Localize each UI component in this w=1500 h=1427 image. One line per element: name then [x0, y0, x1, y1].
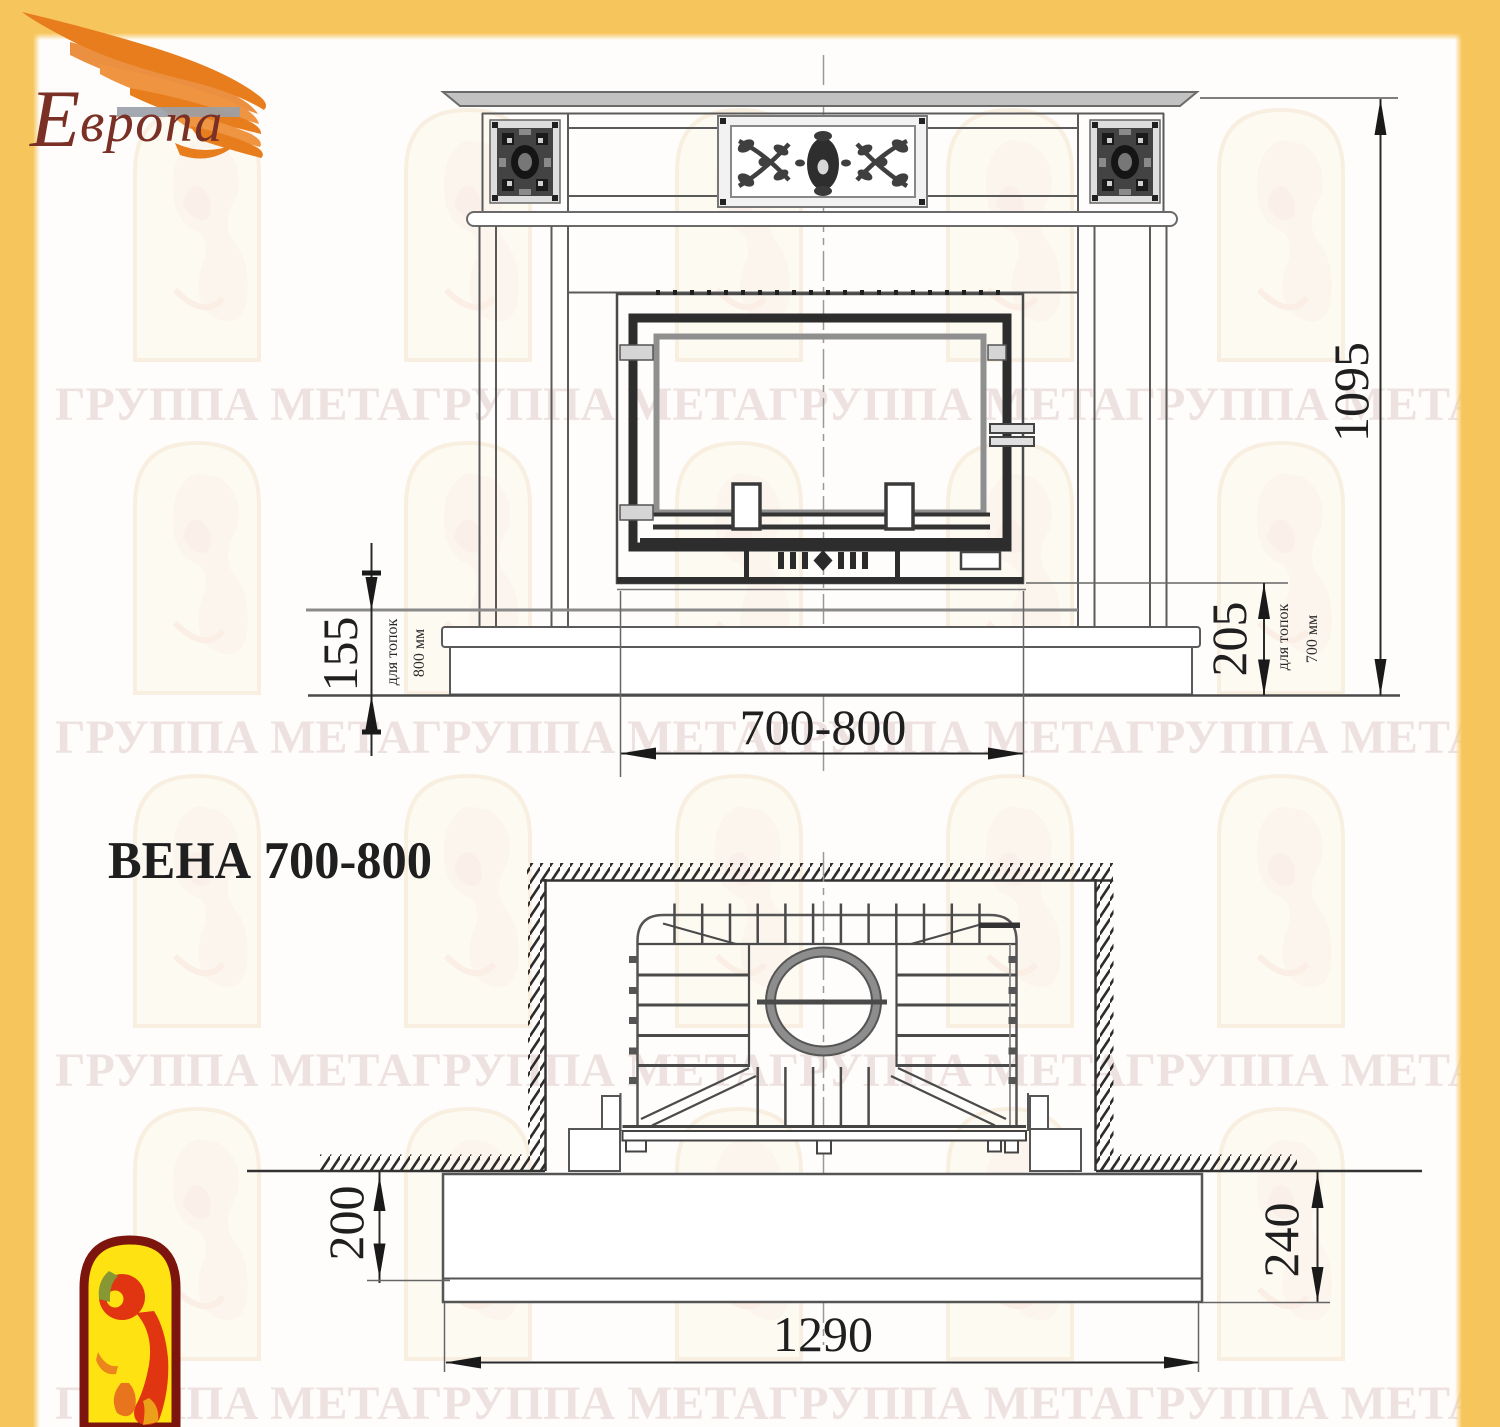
svg-text:ГРУППА МЕТАГРУППА МЕТАГРУППА М: ГРУППА МЕТАГРУППА МЕТАГРУППА МЕТАГРУППА …	[55, 378, 1500, 431]
svg-text:ВЕНА 700-800: ВЕНА 700-800	[108, 832, 432, 890]
svg-text:ГРУППА МЕТАГРУППА МЕТАГРУППА М: ГРУППА МЕТАГРУППА МЕТАГРУППА МЕТАГРУППА …	[55, 1377, 1500, 1427]
svg-text:1290: 1290	[773, 1306, 873, 1362]
svg-text:205: 205	[1201, 602, 1257, 677]
svg-text:Е: Е	[29, 73, 80, 164]
svg-text:для топок: для топок	[384, 618, 401, 685]
svg-text:700 мм: 700 мм	[1304, 615, 1321, 663]
svg-text:155: 155	[312, 617, 368, 692]
svg-text:240: 240	[1253, 1203, 1309, 1278]
svg-text:для топок: для топок	[1275, 603, 1292, 670]
svg-text:800 мм: 800 мм	[411, 629, 428, 677]
svg-text:700-800: 700-800	[740, 699, 907, 755]
svg-text:200: 200	[318, 1186, 374, 1261]
svg-text:вропа: вропа	[80, 92, 224, 154]
svg-text:ГРУППА МЕТАГРУППА МЕТАГРУППА М: ГРУППА МЕТАГРУППА МЕТАГРУППА МЕТАГРУППА …	[55, 1044, 1500, 1097]
svg-text:1095: 1095	[1323, 342, 1379, 442]
